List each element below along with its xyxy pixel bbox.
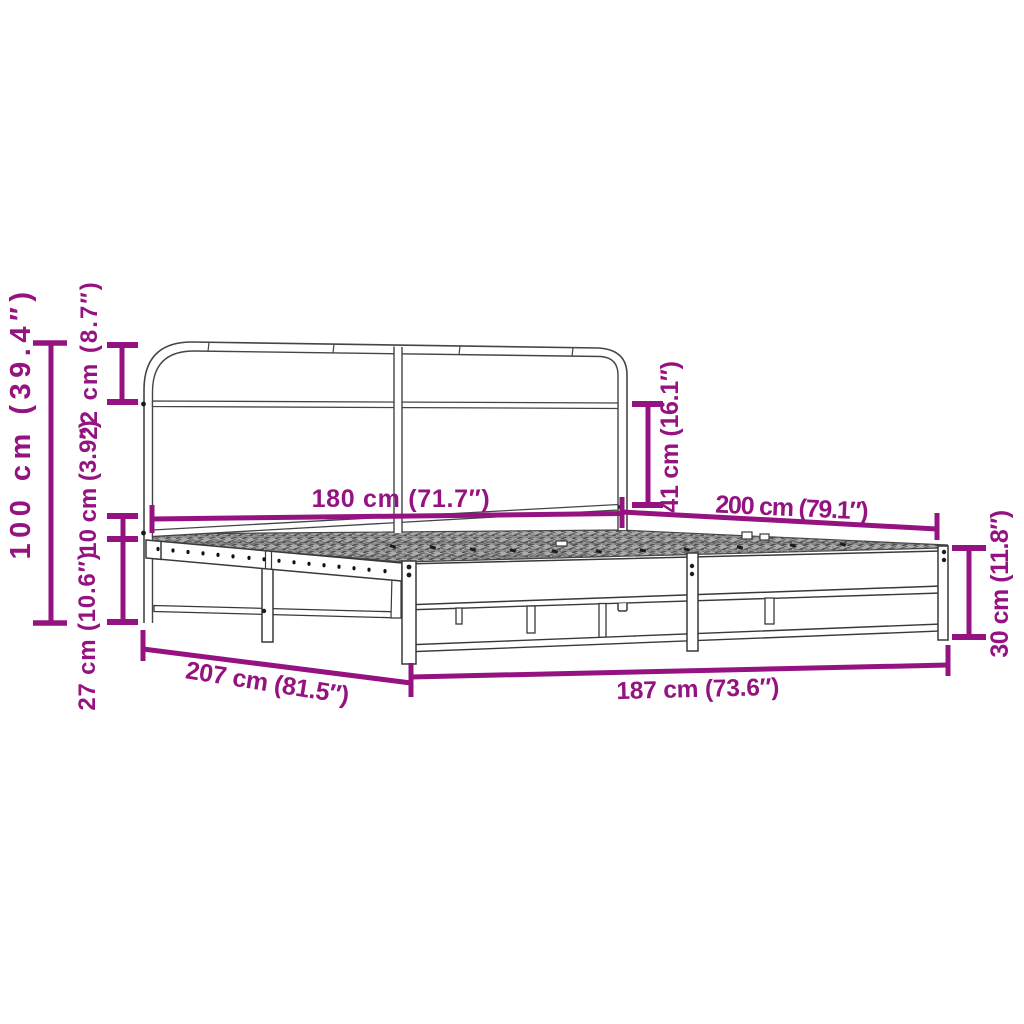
svg-text:22 cm (8.7″): 22 cm (8.7″) bbox=[76, 280, 103, 440]
svg-text:187 cm (73.6″): 187 cm (73.6″) bbox=[616, 674, 779, 705]
svg-text:27 cm (10.6″): 27 cm (10.6″) bbox=[74, 551, 101, 710]
svg-text:30 cm (11.8″): 30 cm (11.8″) bbox=[986, 510, 1014, 657]
svg-text:180 cm (71.7″): 180 cm (71.7″) bbox=[312, 485, 491, 513]
svg-text:100 cm (39.4″): 100 cm (39.4″) bbox=[5, 286, 37, 559]
svg-text:41 cm (16.1″): 41 cm (16.1″) bbox=[656, 361, 684, 512]
svg-text:10 cm (3.9″): 10 cm (3.9″) bbox=[75, 420, 102, 556]
